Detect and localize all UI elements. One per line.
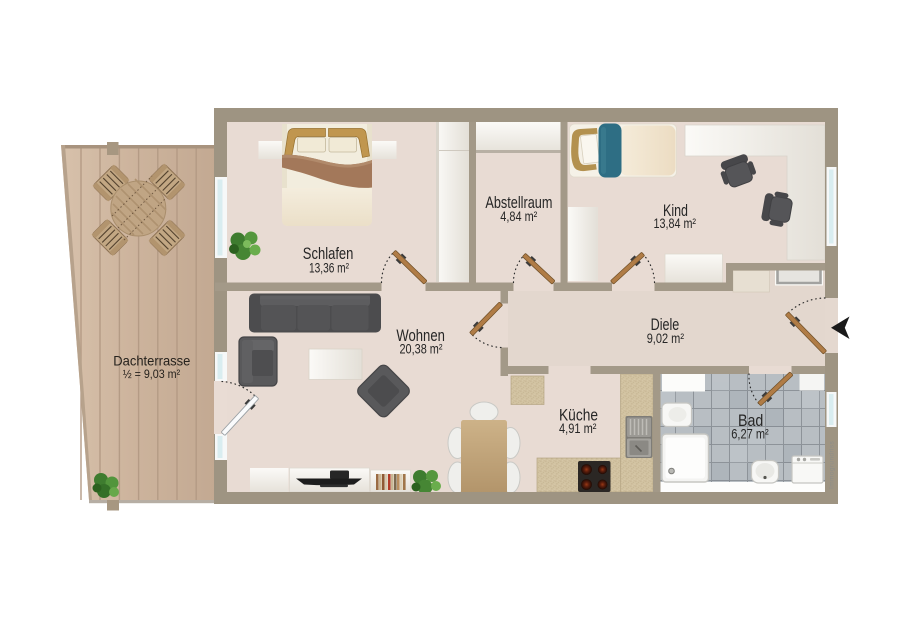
- svg-text:13,84 m²: 13,84 m²: [654, 216, 697, 231]
- svg-text:4,84 m²: 4,84 m²: [500, 209, 537, 224]
- svg-text:20,38 m²: 20,38 m²: [400, 342, 443, 357]
- svg-text:6,27 m²: 6,27 m²: [731, 427, 769, 442]
- svg-text:4,91 m²: 4,91 m²: [559, 421, 597, 436]
- svg-text:Immogrundriss: Immogrundriss: [829, 440, 836, 489]
- svg-text:9,02 m²: 9,02 m²: [647, 331, 685, 346]
- svg-text:½ = 9,03 m²: ½ = 9,03 m²: [123, 367, 181, 381]
- svg-text:13,36 m²: 13,36 m²: [309, 261, 349, 276]
